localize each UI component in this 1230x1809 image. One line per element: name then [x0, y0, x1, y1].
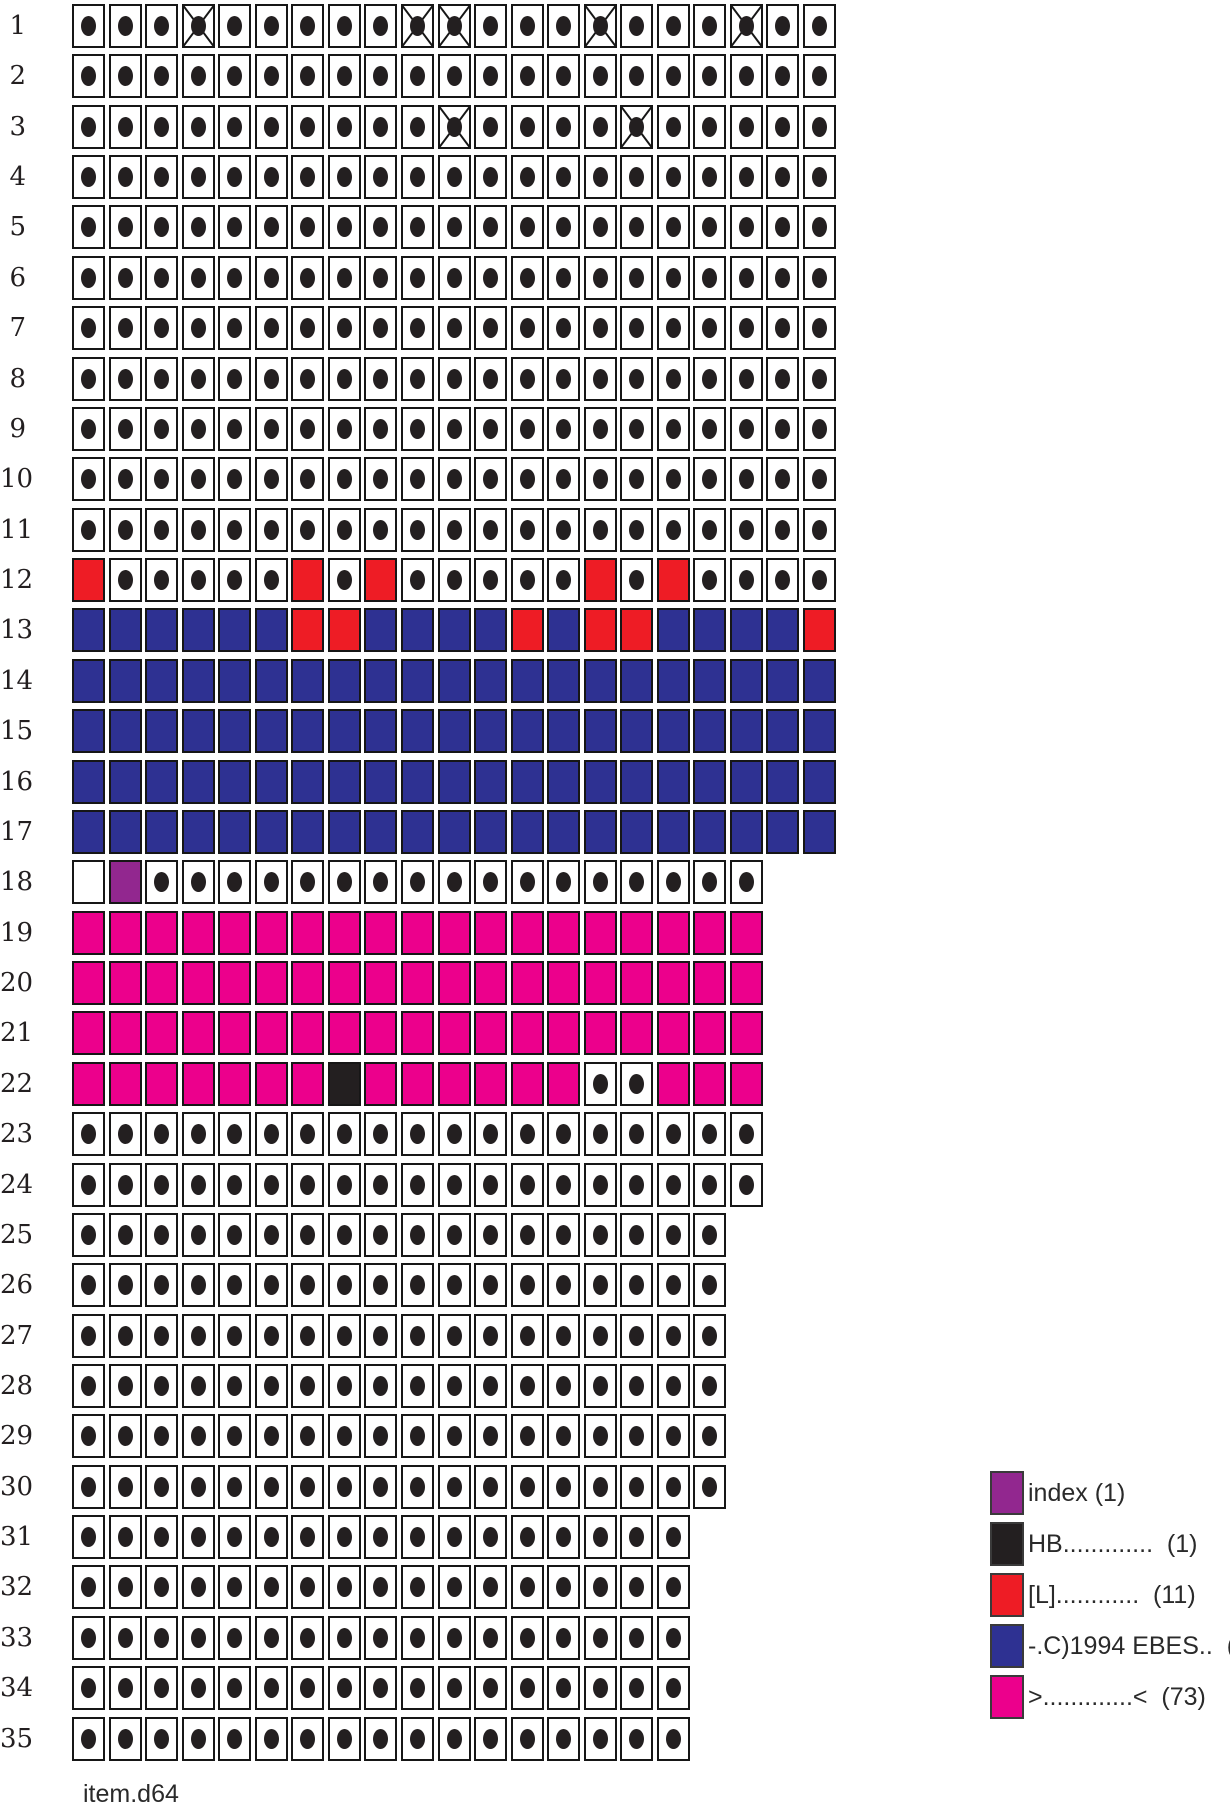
block-cell	[109, 1414, 142, 1458]
block-cell	[218, 608, 251, 652]
free-block-dot	[702, 167, 717, 187]
free-block-dot	[300, 167, 315, 187]
free-block-dot	[227, 1376, 242, 1396]
block-cell	[218, 1011, 251, 1055]
block-cell	[547, 911, 580, 955]
block-cell	[584, 760, 617, 804]
free-block-dot	[739, 318, 754, 338]
free-block-dot	[702, 1124, 717, 1144]
free-block-dot	[483, 1275, 498, 1295]
free-block-dot	[191, 16, 206, 36]
block-cell	[547, 256, 580, 300]
block-cell	[328, 659, 361, 703]
free-block-dot	[520, 419, 535, 439]
free-block-dot	[775, 167, 790, 187]
block-cell	[511, 1515, 544, 1559]
block-cell	[803, 256, 836, 300]
free-block-dot	[702, 318, 717, 338]
free-block-dot	[739, 1124, 754, 1144]
block-cell	[620, 961, 653, 1005]
block-cell	[401, 457, 434, 501]
free-block-dot	[118, 1124, 133, 1144]
block-cell	[364, 4, 397, 48]
block-cell	[693, 457, 726, 501]
block-cell	[401, 911, 434, 955]
block-cell	[109, 709, 142, 753]
free-block-dot	[483, 318, 498, 338]
block-cell	[657, 1213, 690, 1257]
free-block-dot	[337, 1477, 352, 1497]
free-block-dot	[300, 469, 315, 489]
free-block-dot	[227, 117, 242, 137]
free-block-dot	[520, 1678, 535, 1698]
block-cell	[364, 1414, 397, 1458]
block-cell	[218, 306, 251, 350]
free-block-dot	[337, 570, 352, 590]
block-cell	[109, 1565, 142, 1609]
free-block-dot	[191, 268, 206, 288]
block-cell	[693, 256, 726, 300]
block-cell	[72, 961, 105, 1005]
block-cell	[438, 810, 471, 854]
block-cell	[511, 608, 544, 652]
block-cell	[145, 659, 178, 703]
free-block-dot	[775, 469, 790, 489]
block-cell	[474, 810, 507, 854]
block-cell	[145, 760, 178, 804]
block-cell	[182, 1213, 215, 1257]
block-cell	[474, 306, 507, 350]
legend-swatch-angle_file	[990, 1675, 1024, 1719]
free-block-dot	[666, 1426, 681, 1446]
free-block-dot	[227, 1426, 242, 1446]
block-cell	[364, 911, 397, 955]
block-cell	[620, 1263, 653, 1307]
block-cell	[693, 1011, 726, 1055]
free-block-dot	[593, 1326, 608, 1346]
block-cell	[364, 1364, 397, 1408]
block-cell	[803, 306, 836, 350]
free-block-dot	[629, 1124, 644, 1144]
block-cell	[364, 1314, 397, 1358]
block-cell	[730, 1163, 763, 1207]
free-block-dot	[81, 1175, 96, 1195]
block-cell	[547, 1364, 580, 1408]
block-cell	[182, 1717, 215, 1761]
block-cell	[291, 860, 324, 904]
free-block-dot	[447, 1376, 462, 1396]
block-cell	[364, 407, 397, 451]
track-label: 22	[0, 1062, 26, 1106]
block-cell	[620, 1717, 653, 1761]
free-block-dot	[520, 117, 535, 137]
free-block-dot	[81, 469, 96, 489]
block-cell	[109, 1213, 142, 1257]
block-cell	[145, 1717, 178, 1761]
free-block-dot	[227, 872, 242, 892]
free-block-dot	[775, 268, 790, 288]
block-cell	[255, 1112, 288, 1156]
free-block-dot	[447, 1326, 462, 1346]
block-cell	[438, 1062, 471, 1106]
block-cell	[766, 810, 799, 854]
free-block-dot	[154, 1577, 169, 1597]
block-cell	[72, 1414, 105, 1458]
block-cell	[328, 1011, 361, 1055]
block-cell	[218, 911, 251, 955]
free-block-dot	[629, 570, 644, 590]
free-block-dot	[666, 1326, 681, 1346]
free-block-dot	[191, 1326, 206, 1346]
free-block-dot	[629, 520, 644, 540]
block-cell	[693, 659, 726, 703]
block-cell	[730, 54, 763, 98]
free-block-dot	[483, 167, 498, 187]
block-cell	[766, 608, 799, 652]
free-block-dot	[702, 369, 717, 389]
free-block-dot	[629, 268, 644, 288]
free-block-dot	[118, 1175, 133, 1195]
free-block-dot	[227, 1326, 242, 1346]
block-cell	[511, 1314, 544, 1358]
free-block-dot	[483, 268, 498, 288]
block-cell	[328, 205, 361, 249]
free-block-dot	[191, 1628, 206, 1648]
block-cell	[182, 961, 215, 1005]
block-cell	[730, 508, 763, 552]
free-block-dot	[629, 117, 644, 137]
free-block-dot	[666, 872, 681, 892]
block-cell	[182, 1666, 215, 1710]
block-cell	[803, 760, 836, 804]
free-block-dot	[593, 1527, 608, 1547]
block-cell	[620, 457, 653, 501]
block-cell	[584, 357, 617, 401]
block-cell	[72, 1515, 105, 1559]
block-cell	[182, 256, 215, 300]
free-block-dot	[666, 369, 681, 389]
block-cell	[218, 1112, 251, 1156]
free-block-dot	[81, 1225, 96, 1245]
block-cell	[438, 306, 471, 350]
free-block-dot	[520, 1527, 535, 1547]
block-cell	[438, 508, 471, 552]
block-cell	[693, 860, 726, 904]
block-cell	[803, 205, 836, 249]
free-block-dot	[118, 1326, 133, 1346]
block-cell	[328, 1314, 361, 1358]
block-cell	[438, 961, 471, 1005]
block-cell	[145, 1465, 178, 1509]
block-cell	[72, 205, 105, 249]
free-block-dot	[666, 1678, 681, 1698]
block-cell	[657, 1011, 690, 1055]
block-cell	[584, 911, 617, 955]
block-cell	[730, 4, 763, 48]
free-block-dot	[483, 1628, 498, 1648]
free-block-dot	[739, 369, 754, 389]
block-cell	[291, 608, 324, 652]
block-cell	[145, 1112, 178, 1156]
block-cell	[291, 1616, 324, 1660]
block-cell	[547, 608, 580, 652]
free-block-dot	[337, 872, 352, 892]
block-cell	[145, 1414, 178, 1458]
block-cell	[511, 407, 544, 451]
block-cell	[693, 1163, 726, 1207]
block-cell	[72, 760, 105, 804]
free-block-dot	[264, 570, 279, 590]
block-cell	[255, 155, 288, 199]
block-cell	[730, 1011, 763, 1055]
block-cell	[328, 1717, 361, 1761]
block-cell	[474, 508, 507, 552]
block-cell	[474, 1666, 507, 1710]
block-cell	[657, 1616, 690, 1660]
block-cell	[766, 105, 799, 149]
track-label: 2	[0, 54, 26, 98]
free-block-dot	[520, 1628, 535, 1648]
free-block-dot	[154, 872, 169, 892]
block-cell	[109, 860, 142, 904]
free-block-dot	[702, 570, 717, 590]
track-label: 8	[0, 357, 26, 401]
block-cell	[401, 1616, 434, 1660]
block-cell	[218, 1465, 251, 1509]
block-cell	[401, 4, 434, 48]
block-cell	[547, 1666, 580, 1710]
free-block-dot	[520, 268, 535, 288]
free-block-dot	[118, 66, 133, 86]
free-block-dot	[81, 1426, 96, 1446]
block-cell	[401, 1163, 434, 1207]
block-cell	[255, 54, 288, 98]
block-cell	[620, 659, 653, 703]
block-cell	[547, 457, 580, 501]
free-block-dot	[81, 1628, 96, 1648]
block-cell	[364, 810, 397, 854]
free-block-dot	[739, 520, 754, 540]
block-cell	[182, 407, 215, 451]
block-cell	[547, 1062, 580, 1106]
block-cell	[218, 256, 251, 300]
block-cell	[255, 357, 288, 401]
track-label: 19	[0, 911, 26, 955]
free-block-dot	[775, 369, 790, 389]
block-cell	[766, 155, 799, 199]
free-block-dot	[775, 520, 790, 540]
free-block-dot	[300, 1426, 315, 1446]
free-block-dot	[373, 1376, 388, 1396]
free-block-dot	[520, 570, 535, 590]
free-block-dot	[483, 66, 498, 86]
free-block-dot	[520, 1225, 535, 1245]
free-block-dot	[373, 520, 388, 540]
free-block-dot	[118, 1376, 133, 1396]
block-cell	[109, 608, 142, 652]
block-cell	[474, 407, 507, 451]
block-cell	[109, 54, 142, 98]
block-cell	[511, 256, 544, 300]
free-block-dot	[227, 318, 242, 338]
block-cell	[255, 1062, 288, 1106]
block-cell	[255, 105, 288, 149]
free-block-dot	[373, 469, 388, 489]
block-cell	[218, 810, 251, 854]
block-cell	[730, 155, 763, 199]
block-cell	[547, 205, 580, 249]
block-cell	[584, 1213, 617, 1257]
free-block-dot	[629, 167, 644, 187]
free-block-dot	[373, 1477, 388, 1497]
block-cell	[438, 1616, 471, 1660]
free-block-dot	[629, 217, 644, 237]
block-cell	[693, 1314, 726, 1358]
block-cell	[145, 1515, 178, 1559]
block-cell	[547, 1414, 580, 1458]
free-block-dot	[812, 369, 827, 389]
block-cell	[291, 961, 324, 1005]
free-block-dot	[154, 1124, 169, 1144]
block-cell	[547, 105, 580, 149]
block-cell	[182, 357, 215, 401]
free-block-dot	[666, 1477, 681, 1497]
block-cell	[657, 457, 690, 501]
block-cell	[474, 105, 507, 149]
free-block-dot	[410, 1225, 425, 1245]
free-block-dot	[483, 1376, 498, 1396]
free-block-dot	[81, 1577, 96, 1597]
free-block-dot	[118, 217, 133, 237]
free-block-dot	[118, 1628, 133, 1648]
block-cell	[547, 1565, 580, 1609]
free-block-dot	[812, 167, 827, 187]
block-cell	[364, 1112, 397, 1156]
block-cell	[109, 1263, 142, 1307]
free-block-dot	[520, 1124, 535, 1144]
block-cell	[401, 155, 434, 199]
free-block-dot	[264, 419, 279, 439]
track-label: 6	[0, 256, 26, 300]
block-cell	[109, 1666, 142, 1710]
block-cell	[620, 1414, 653, 1458]
block-cell	[364, 306, 397, 350]
free-block-dot	[775, 570, 790, 590]
block-cell	[766, 256, 799, 300]
free-block-dot	[520, 1477, 535, 1497]
free-block-dot	[666, 469, 681, 489]
block-cell	[291, 1364, 324, 1408]
track-label: 4	[0, 155, 26, 199]
block-cell	[474, 760, 507, 804]
free-block-dot	[337, 1175, 352, 1195]
free-block-dot	[118, 1577, 133, 1597]
free-block-dot	[373, 1729, 388, 1749]
free-block-dot	[264, 1729, 279, 1749]
block-cell	[291, 457, 324, 501]
block-cell	[657, 558, 690, 602]
block-cell	[364, 608, 397, 652]
free-block-dot	[593, 1074, 608, 1094]
block-cell	[72, 54, 105, 98]
block-cell	[328, 407, 361, 451]
free-block-dot	[118, 469, 133, 489]
free-block-dot	[556, 1175, 571, 1195]
block-cell	[547, 1515, 580, 1559]
free-block-dot	[593, 1729, 608, 1749]
free-block-dot	[483, 16, 498, 36]
block-cell	[72, 4, 105, 48]
block-cell	[474, 1062, 507, 1106]
block-cell	[547, 357, 580, 401]
block-cell	[255, 709, 288, 753]
free-block-dot	[300, 1275, 315, 1295]
block-cell	[291, 558, 324, 602]
free-block-dot	[520, 16, 535, 36]
filename-label: item.d64	[83, 1780, 179, 1809]
block-cell	[620, 1213, 653, 1257]
block-cell	[255, 1263, 288, 1307]
free-block-dot	[447, 570, 462, 590]
track-label: 31	[0, 1515, 26, 1559]
block-cell	[328, 608, 361, 652]
free-block-dot	[118, 419, 133, 439]
block-cell	[255, 205, 288, 249]
block-cell	[328, 54, 361, 98]
free-block-dot	[447, 1477, 462, 1497]
block-cell	[401, 659, 434, 703]
free-block-dot	[556, 570, 571, 590]
block-cell	[364, 457, 397, 501]
free-block-dot	[191, 1175, 206, 1195]
free-block-dot	[666, 66, 681, 86]
block-cell	[401, 1465, 434, 1509]
block-cell	[693, 911, 726, 955]
block-cell	[438, 407, 471, 451]
free-block-dot	[264, 1175, 279, 1195]
free-block-dot	[666, 217, 681, 237]
block-cell	[803, 558, 836, 602]
block-cell	[584, 1414, 617, 1458]
free-block-dot	[483, 369, 498, 389]
block-cell	[474, 155, 507, 199]
block-cell	[474, 1213, 507, 1257]
free-block-dot	[227, 268, 242, 288]
free-block-dot	[264, 16, 279, 36]
free-block-dot	[227, 570, 242, 590]
free-block-dot	[118, 268, 133, 288]
block-cell	[218, 508, 251, 552]
free-block-dot	[447, 1275, 462, 1295]
block-cell	[438, 205, 471, 249]
free-block-dot	[300, 1577, 315, 1597]
block-cell	[145, 558, 178, 602]
block-cell	[291, 1414, 324, 1458]
free-block-dot	[373, 117, 388, 137]
block-cell	[511, 306, 544, 350]
block-cell	[657, 1062, 690, 1106]
free-block-dot	[447, 1527, 462, 1547]
block-cell	[218, 961, 251, 1005]
block-cell	[218, 357, 251, 401]
block-cell	[182, 1314, 215, 1358]
free-block-dot	[191, 117, 206, 137]
block-cell	[730, 709, 763, 753]
free-block-dot	[483, 872, 498, 892]
free-block-dot	[373, 872, 388, 892]
block-cell	[657, 1666, 690, 1710]
free-block-dot	[191, 318, 206, 338]
